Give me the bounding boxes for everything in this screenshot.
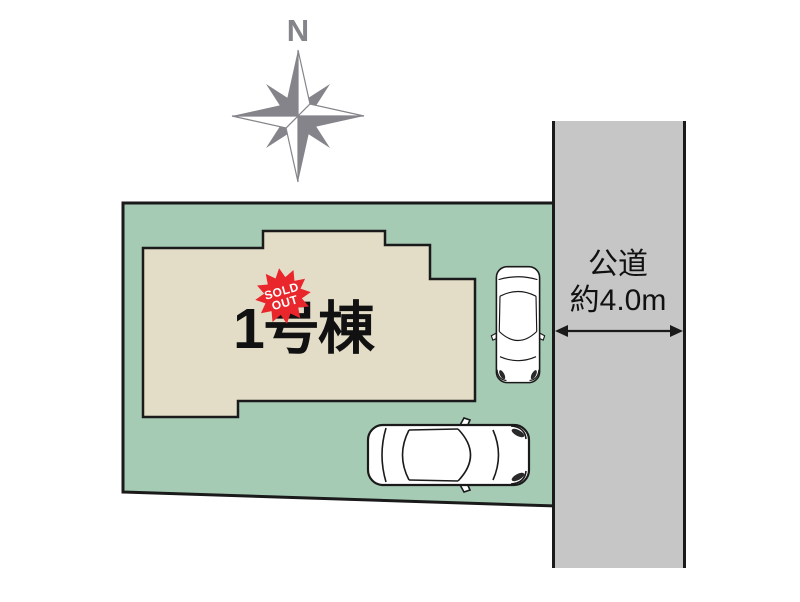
car-icon-vertical [486, 265, 546, 386]
north-label: N [278, 15, 318, 47]
road-name: 公道 [552, 247, 684, 283]
car-icon-horizontal [365, 417, 533, 498]
road-label: 公道 約4.0m [552, 247, 684, 319]
road-area [552, 121, 686, 568]
compass-rose-icon [232, 50, 364, 182]
site-plan-canvas: N 1号棟 SOLD OUT 公道 約4.0m [0, 0, 800, 602]
road-width: 約4.0m [552, 283, 684, 319]
sold-out-badge: SOLD OUT [250, 263, 316, 329]
